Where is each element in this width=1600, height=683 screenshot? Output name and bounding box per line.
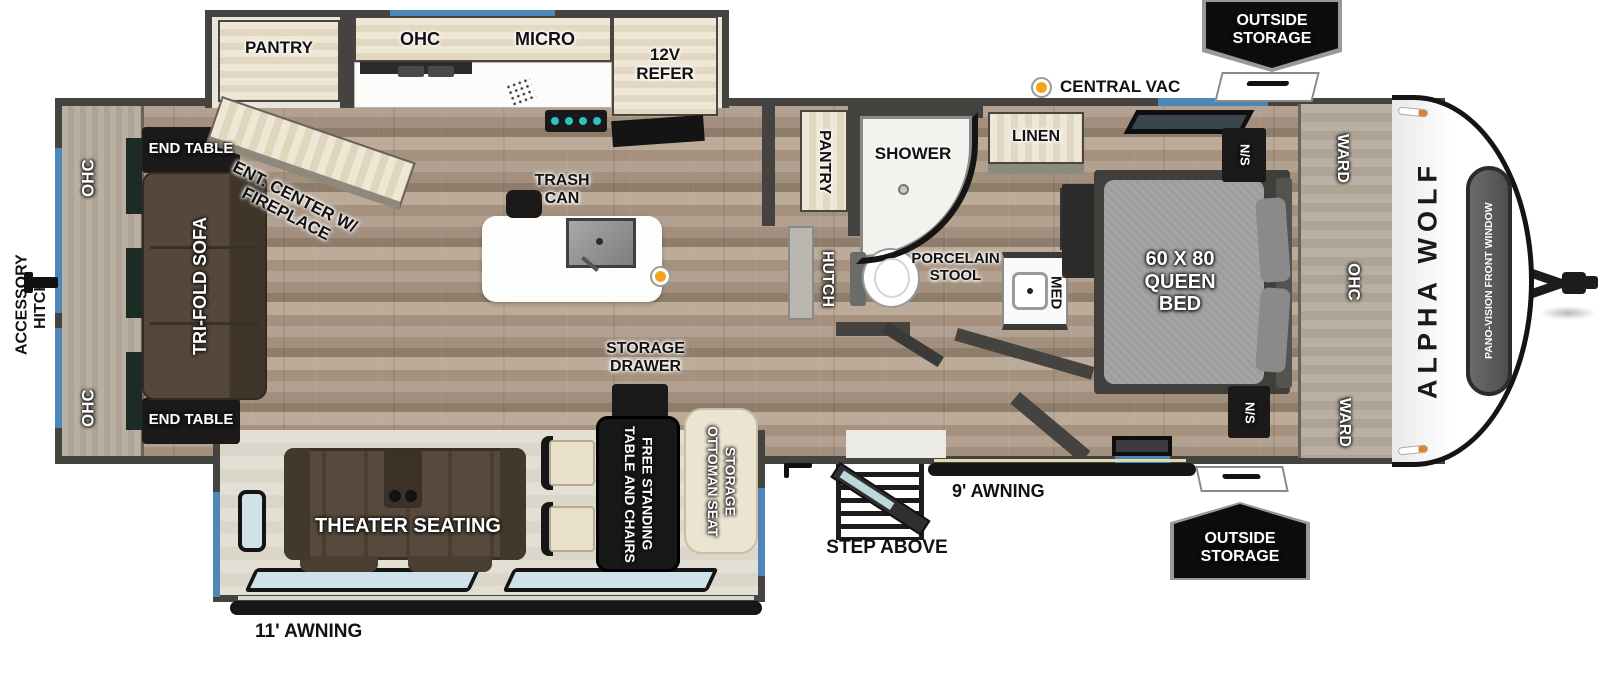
rear-cabinet-slot: [126, 248, 142, 318]
dinette-chair: [549, 440, 595, 486]
hall-wall: [762, 106, 775, 226]
awning-rear-bar: [230, 601, 762, 615]
rear-ohc-label-bottom: OHC: [72, 376, 104, 440]
accessory-hitch-label: ACCESSORY HITCH: [4, 240, 60, 370]
entry-door-opening: [846, 430, 946, 458]
hutch-cabinet: [788, 226, 814, 320]
theater-label: THEATER SEATING: [296, 512, 520, 540]
central-vac-marker-dot: [1031, 77, 1052, 98]
pano-vision-label: PANO-VISION FRONT WINDOW: [1472, 172, 1506, 390]
shower-label: SHOWER: [860, 142, 966, 166]
awning-rear-label: 11' AWNING: [255, 622, 455, 643]
theater-console: [384, 450, 422, 508]
vanity-drain-icon: [1027, 288, 1033, 294]
grab-handle-icon: [784, 463, 789, 478]
queen-bed-label: 60 X 80 QUEEN BED: [1128, 246, 1232, 318]
kitchen-pantry-cabinet: [218, 20, 340, 102]
hitch-coupler: [1562, 272, 1586, 294]
kitchen-sink-basin-right: [428, 66, 454, 77]
nightstand-top-label: N/S: [1232, 132, 1256, 178]
rear-cabinet-slot: [126, 138, 142, 214]
storage-drawer-label: STORAGE DRAWER: [598, 336, 693, 380]
slide-end-window: [238, 490, 266, 552]
alpha-wolf-floorplan: PANTRY OHC MICRO 12V REFER OHC OHC END T…: [0, 0, 1600, 683]
cooktop: [545, 110, 607, 132]
awning-door-label: 9' AWNING: [952, 482, 1092, 502]
storage-door-flap-top: [1214, 72, 1319, 102]
med-label: MED: [1044, 264, 1066, 322]
linen-label: LINEN: [996, 124, 1076, 150]
storage-door-flap-bottom: [1195, 466, 1289, 492]
rear-cabinet-slot: [126, 352, 142, 430]
ward-bottom-label: WARD: [1330, 390, 1358, 454]
accessory-hitch-pin: [24, 272, 33, 293]
dinette-table-label: FREE STANDING TABLE AND CHAIRS: [600, 424, 676, 564]
ottoman-label: STORAGE OTTOMAN SEAT: [688, 416, 754, 546]
grab-handle-icon: [786, 463, 812, 468]
outside-storage-top-label: OUTSIDE STORAGE: [1222, 12, 1322, 58]
kitchen-ohc-label: OHC: [370, 26, 470, 52]
storage-drawer: [612, 384, 668, 420]
awning-door-bar: [928, 463, 1196, 476]
toilet-seat-ring: [874, 258, 910, 298]
awning-rear-rail: [238, 596, 754, 600]
flap-handle-icon: [1246, 81, 1289, 86]
slide-right-window-strip: [758, 488, 765, 576]
theater-arm-left: [284, 448, 310, 560]
ward-top-label: WARD: [1328, 126, 1356, 190]
sofa-label: TRI-FOLD SOFA: [180, 186, 220, 386]
linen-cabinet-base: [988, 164, 1084, 174]
theater-footrest-right: [408, 556, 492, 572]
flap-handle-icon: [1222, 474, 1261, 479]
outside-storage-badge-bottom: OUTSIDE STORAGE: [1174, 504, 1306, 578]
refer-label: 12V REFER: [622, 36, 708, 92]
burner-icon: [551, 117, 559, 125]
theater-arm-right: [500, 448, 526, 560]
central-vac-label: CENTRAL VAC: [1060, 78, 1200, 97]
hitch-shadow: [1540, 306, 1596, 320]
cupholder-icon: [389, 490, 401, 502]
island-marker-dot: [650, 266, 671, 287]
awning-door-rail: [934, 459, 1186, 462]
burner-icon: [565, 117, 573, 125]
theater-footrest-left: [300, 556, 378, 572]
bedroom-bottom-window: [1112, 436, 1172, 456]
burner-icon: [579, 117, 587, 125]
sink-drain-icon: [596, 238, 603, 245]
pillow: [1255, 287, 1291, 373]
kitchen-sink-basin-left: [398, 66, 424, 77]
kitchen-pantry-label: PANTRY: [224, 36, 334, 60]
bedroom-ohc-label: OHC: [1340, 250, 1368, 314]
hutch-label: HUTCH: [814, 240, 840, 318]
nightstand-bottom-label: N/S: [1237, 390, 1261, 436]
dinette-chair: [549, 506, 595, 552]
trash-can-label: TRASH CAN: [522, 168, 602, 212]
rear-ohc-label-top: OHC: [72, 146, 104, 210]
end-table-bottom-label: END TABLE: [142, 406, 240, 434]
hitch-ball-mount: [1584, 276, 1598, 289]
brand-logo: ALPHA WOLF: [1408, 150, 1448, 410]
kitchen-micro-label: MICRO: [490, 26, 600, 52]
cupholder-icon: [405, 490, 417, 502]
outside-storage-bottom-label: OUTSIDE STORAGE: [1190, 516, 1290, 566]
slide-left-window-strip: [213, 492, 220, 597]
shower-drain-icon: [898, 184, 909, 195]
toilet-label: PORCELAIN STOOL: [908, 248, 1003, 288]
burner-icon: [593, 117, 601, 125]
step-above-label: STEP ABOVE: [812, 538, 962, 559]
kitchen-divider-wall: [340, 14, 354, 108]
pillow: [1255, 197, 1291, 283]
hall-pantry-label: PANTRY: [810, 118, 838, 206]
